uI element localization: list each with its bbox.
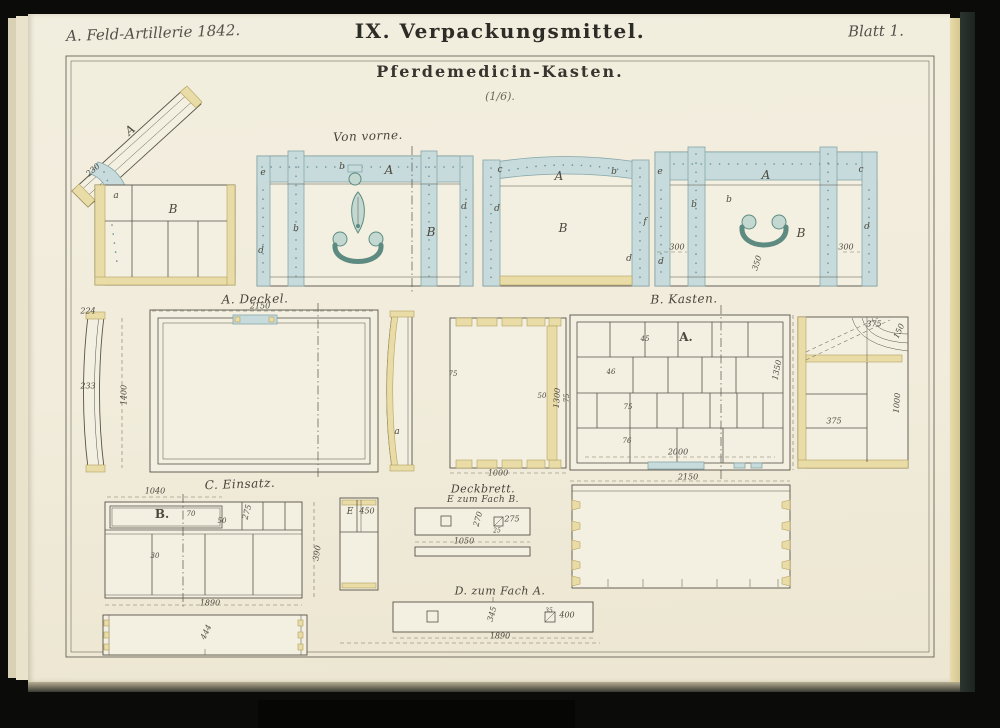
annotation-label: d <box>258 246 264 256</box>
annotation-label: 1040 <box>145 487 165 496</box>
annotation-label: 35 <box>545 608 553 615</box>
section-label: E zum Fach B. <box>447 495 519 505</box>
annotation-label: 2150 <box>678 473 698 482</box>
lid-plan <box>150 303 378 478</box>
annotation-label: 70 <box>187 510 196 518</box>
drawing-scale: (1/6). <box>300 90 700 103</box>
annotation-label: B <box>559 221 568 235</box>
annotation-label: 400 <box>559 611 574 620</box>
box-section-right <box>798 317 908 468</box>
annotation-label: 375 <box>866 320 881 329</box>
annotation-label: B <box>797 226 806 240</box>
annotation-label: 1050 <box>454 537 474 546</box>
annotation-label: b <box>691 200 697 210</box>
annotation-label: d <box>626 254 632 264</box>
annotation-label: b <box>339 162 345 172</box>
annotation-label: f <box>643 217 646 227</box>
annotation-label: d <box>461 202 467 212</box>
sheet-number: Blatt 1. <box>848 22 904 41</box>
plate-linework <box>0 0 1000 728</box>
view-open-chest <box>72 86 235 285</box>
annotation-label: 233 <box>80 382 95 391</box>
annotation-label: A <box>555 169 564 183</box>
section-label: Deckbrett. <box>451 483 515 496</box>
section-label: D. zum Fach A. <box>455 585 546 598</box>
annotation-label: A <box>385 163 394 177</box>
annotation-label: a <box>113 191 118 201</box>
annotation-label: b <box>726 195 732 205</box>
board-large <box>572 485 790 588</box>
annotation-label: c <box>858 165 863 175</box>
annotation-label: 300 <box>838 243 853 252</box>
lid-profile-mid <box>387 311 414 471</box>
annotation-label: 1890 <box>490 632 510 641</box>
annotation-label: 300 <box>669 243 684 252</box>
annotation-label: B <box>427 225 436 239</box>
annotation-label: 1400 <box>120 385 129 405</box>
annotation-label: e <box>657 167 662 177</box>
annotation-label: e <box>260 168 265 178</box>
annotation-label: 75 <box>624 403 633 411</box>
annotation-label: 50 <box>538 392 547 400</box>
annotation-label: 224 <box>80 307 95 316</box>
annotation-label: d <box>494 204 500 214</box>
annotation-label: 375 <box>826 417 841 426</box>
annotation-label: b <box>611 167 617 177</box>
annotation-label: A <box>762 168 771 182</box>
board-d <box>340 597 600 643</box>
annotation-label: 25 <box>493 528 501 535</box>
annotation-label: 1000 <box>892 392 903 413</box>
annotation-label: 1300 <box>552 388 562 409</box>
annotation-label: 2150 <box>250 302 270 311</box>
section-label: Von vorne. <box>333 128 403 144</box>
view-front <box>257 146 473 293</box>
annotation-label: c <box>497 165 502 175</box>
annotation-label: 1890 <box>200 599 220 608</box>
annotation-label: 275 <box>504 515 519 524</box>
annotation-label: 2000 <box>668 448 688 457</box>
annotation-label: 50 <box>218 517 227 525</box>
tray-front <box>105 494 314 608</box>
annotation-label: d <box>658 257 664 267</box>
annotation-label: 30 <box>151 552 160 560</box>
book-photo: { "header": { "left": "A. Feld-Artilleri… <box>0 0 1000 728</box>
annotation-label: 46 <box>607 368 616 376</box>
annotation-label: 75 <box>449 370 458 378</box>
annotation-label: A. <box>679 330 693 344</box>
annotation-label: d <box>864 222 870 232</box>
annotation-label: 75 <box>563 394 571 403</box>
annotation-label: 76 <box>623 437 632 445</box>
lid-profile-left <box>84 312 123 472</box>
annotation-label: 450 <box>359 507 374 516</box>
section-label: C. Einsatz. <box>205 476 276 492</box>
annotation-label: B. <box>155 507 169 521</box>
plate-heading: IX. Verpackungsmittel. <box>340 19 660 43</box>
annotation-label: 45 <box>641 335 650 343</box>
annotation-label: a <box>394 427 399 437</box>
annotation-label: E <box>347 507 354 517</box>
annotation-label: 1000 <box>488 469 508 478</box>
annotation-label: B <box>169 202 178 216</box>
annotation-label: b <box>293 224 299 234</box>
drawing-title: Pferdemedicin-Kasten. <box>300 62 700 81</box>
section-label: B. Kasten. <box>650 291 717 306</box>
